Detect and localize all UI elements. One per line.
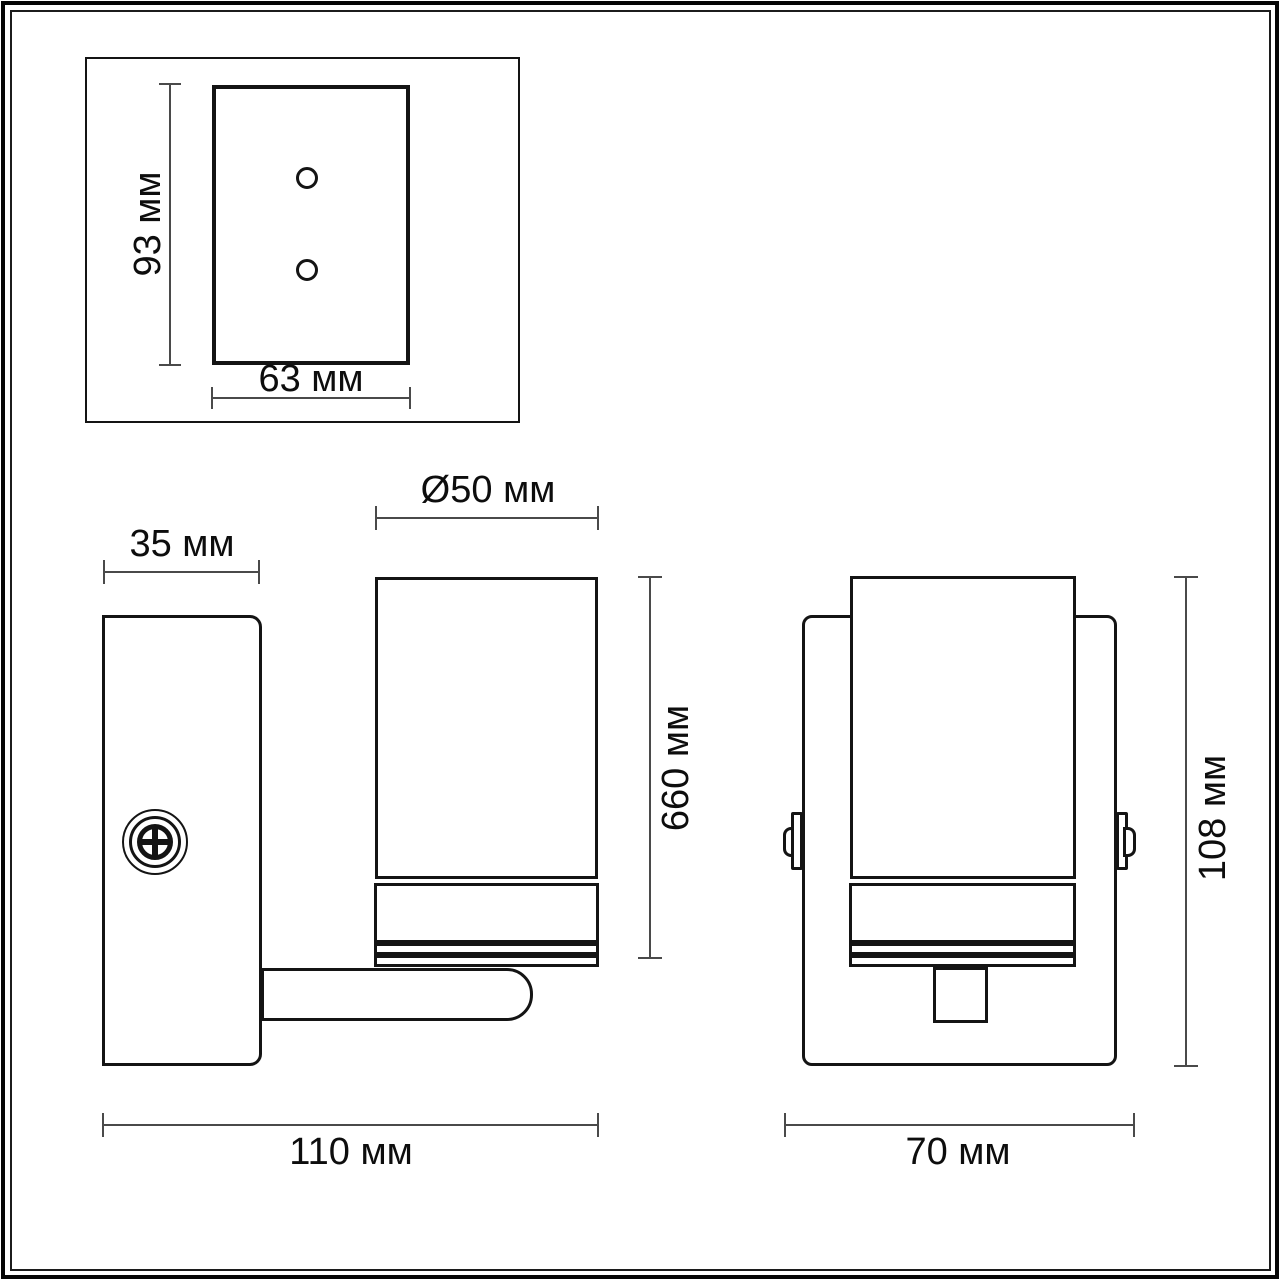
- dim-tick: [211, 387, 213, 409]
- dim-label-plate-width: 63 мм: [258, 360, 363, 398]
- dim-line-108: [1185, 577, 1187, 1067]
- front-holder-band: [849, 883, 1076, 943]
- dim-line-35: [104, 571, 260, 573]
- dim-label-total-width: 70 мм: [905, 1133, 1010, 1171]
- side-arm-outline: [261, 968, 533, 1021]
- dim-line-d50: [376, 517, 599, 519]
- dim-tick: [1174, 576, 1198, 578]
- dim-label-shade-diameter: Ø50 мм: [421, 471, 556, 509]
- dim-tick: [1174, 1065, 1198, 1067]
- dim-tick: [159, 83, 181, 85]
- dim-label-plate-depth: 35 мм: [129, 525, 234, 563]
- front-holder-ring-1: [849, 943, 1076, 955]
- mounting-hole-top: [296, 167, 318, 189]
- dim-tick: [375, 506, 377, 530]
- dim-tick: [1133, 1113, 1135, 1137]
- dim-tick: [103, 560, 105, 584]
- mounting-plate-outline: [212, 85, 410, 365]
- front-knob-right-cap: [1123, 827, 1136, 857]
- dim-line-110: [103, 1124, 599, 1126]
- dim-tick: [638, 576, 662, 578]
- side-holder-ring-2: [374, 955, 599, 967]
- dim-line-93: [169, 84, 171, 365]
- screw-cross-horizontal: [140, 839, 170, 845]
- dim-label-total-height: 108 мм: [1194, 755, 1232, 881]
- dim-tick: [102, 1113, 104, 1137]
- dim-tick: [638, 957, 662, 959]
- dim-label-body-height: 660 мм: [657, 705, 695, 831]
- dim-tick: [159, 364, 181, 366]
- dim-tick: [258, 560, 260, 584]
- side-shade-outline: [375, 577, 598, 879]
- dim-tick: [784, 1113, 786, 1137]
- front-switch-outline: [933, 967, 988, 1023]
- side-holder-band: [374, 883, 599, 943]
- mounting-hole-bottom: [296, 259, 318, 281]
- dim-line-70: [785, 1124, 1135, 1126]
- side-holder-ring-1: [374, 943, 599, 955]
- dim-tick: [597, 506, 599, 530]
- dim-label-plate-height: 93 мм: [129, 171, 167, 276]
- dim-label-total-depth: 110 мм: [289, 1133, 412, 1171]
- technical-drawing-canvas: 93 мм 63 мм 35 мм Ø50 мм 660 мм 110 мм: [0, 0, 1280, 1280]
- dim-line-660: [649, 577, 651, 959]
- front-shade-outline: [850, 576, 1076, 879]
- dim-tick: [597, 1113, 599, 1137]
- dim-tick: [409, 387, 411, 409]
- front-holder-ring-2: [849, 955, 1076, 967]
